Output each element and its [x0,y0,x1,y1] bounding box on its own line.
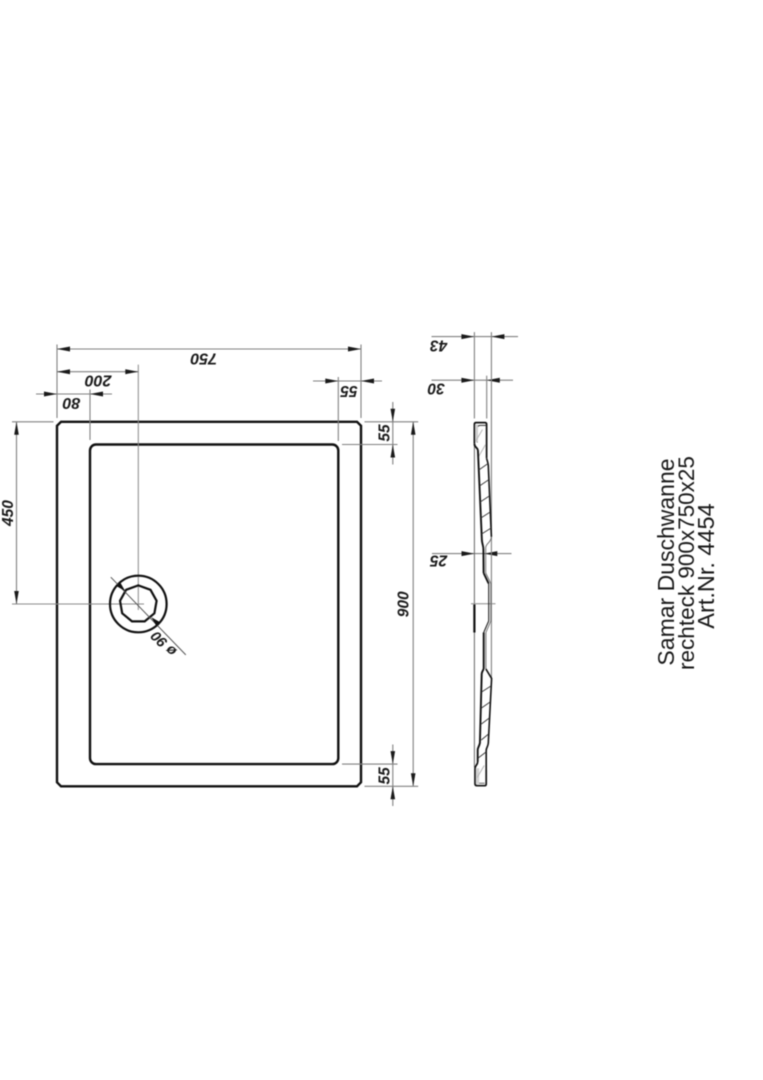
svg-text:450: 450 [0,500,17,527]
svg-text:200: 200 [85,372,113,389]
svg-text:55: 55 [340,382,358,399]
svg-text:750: 750 [190,350,217,367]
svg-text:Art.Nr. 4454: Art.Nr. 4454 [693,503,719,628]
svg-text:25: 25 [430,552,449,569]
svg-text:80: 80 [63,394,81,411]
svg-text:900: 900 [396,591,413,617]
svg-text:55: 55 [376,424,393,442]
svg-text:43: 43 [430,336,449,353]
svg-text:30: 30 [427,379,445,396]
svg-text:55: 55 [377,767,394,785]
